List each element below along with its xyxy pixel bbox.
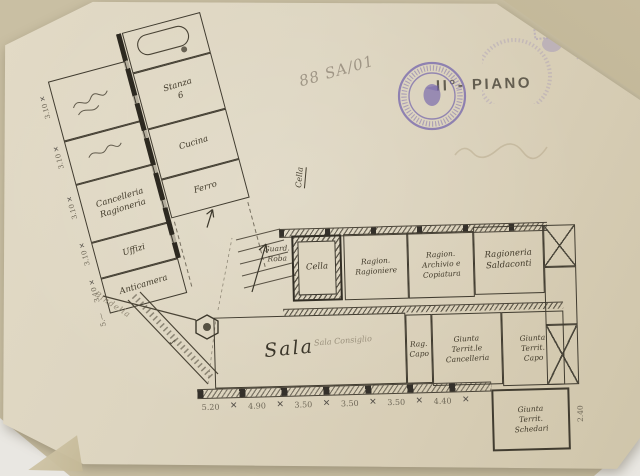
room-giunta-cancelleria: Giunta Territ.le Cancelleria [431, 312, 503, 386]
room-archivio-copiatura: Ragion. Archivio e Copiatura [407, 231, 475, 299]
room-label: Giunta Territ. Capo [520, 333, 547, 364]
room-label: Giunta Territ.le Cancelleria [445, 333, 490, 365]
shaft-braced-top [543, 224, 576, 267]
room-pencil-label: Sala Consiglio [314, 334, 372, 348]
check-mark: ✓ [167, 335, 178, 349]
room-label: Ragioneria Saldaconti [485, 247, 534, 272]
cella-block: Cella [291, 234, 343, 301]
room-schedari: Giunta Territ. Schedari [491, 387, 571, 451]
room-label: Giunta Territ. Schedari [513, 404, 549, 435]
room-label: Sala [264, 335, 316, 362]
x-mark: ✕ [462, 395, 470, 405]
paper-sheet: 88 SA/01 II°- PIANO Cancel [0, 0, 640, 476]
dimension-value: 3.50 [294, 400, 312, 409]
room-saldaconti: Ragioneria Saldaconti [473, 225, 545, 295]
room-label: Ragion. Ragioniere [355, 255, 398, 277]
x-mark: ✕ [323, 399, 331, 409]
cella-callout: Cella [294, 167, 307, 189]
room-label: Ragion. Archivio e Copiatura [421, 249, 461, 281]
dimension-value: 5.20 [202, 402, 220, 411]
room-label: Rag. Capo [409, 338, 430, 359]
dimension-right: 2.40 [576, 405, 585, 422]
x-mark: ✕ [230, 401, 238, 411]
cella-room: Cella [297, 240, 336, 295]
x-mark: ✕ [276, 400, 284, 410]
room-ragioniere: Ragion. Ragioniere [343, 233, 409, 301]
x-mark: ✕ [415, 396, 423, 406]
dimension-value: 3.50 [341, 398, 359, 407]
x-mark: ✕ [369, 397, 377, 407]
reference-number: 88 SA/01 [297, 52, 376, 91]
dimension-value: 4.40 [434, 396, 452, 405]
round-ink-stamp-icon [394, 58, 470, 134]
room-giunta-capo: Giunta Territ. Capo [501, 311, 565, 387]
scanned-floor-plan: 88 SA/01 II°- PIANO Cancel [0, 0, 640, 476]
dimension-value: 4.90 [248, 401, 266, 410]
room-sala: Sala Sala Consiglio [213, 313, 407, 389]
room-label: Cella [306, 262, 329, 274]
room-rag-capo: Rag. Capo [405, 314, 433, 384]
partial-stamps-icon [482, 4, 612, 104]
paper-wrap: 88 SA/01 II°- PIANO Cancel [0, 0, 640, 476]
main-block: Cella Ragion. Ragioniere Ragion. Archivi… [185, 211, 601, 472]
dimension-value: 3.50 [387, 397, 405, 406]
